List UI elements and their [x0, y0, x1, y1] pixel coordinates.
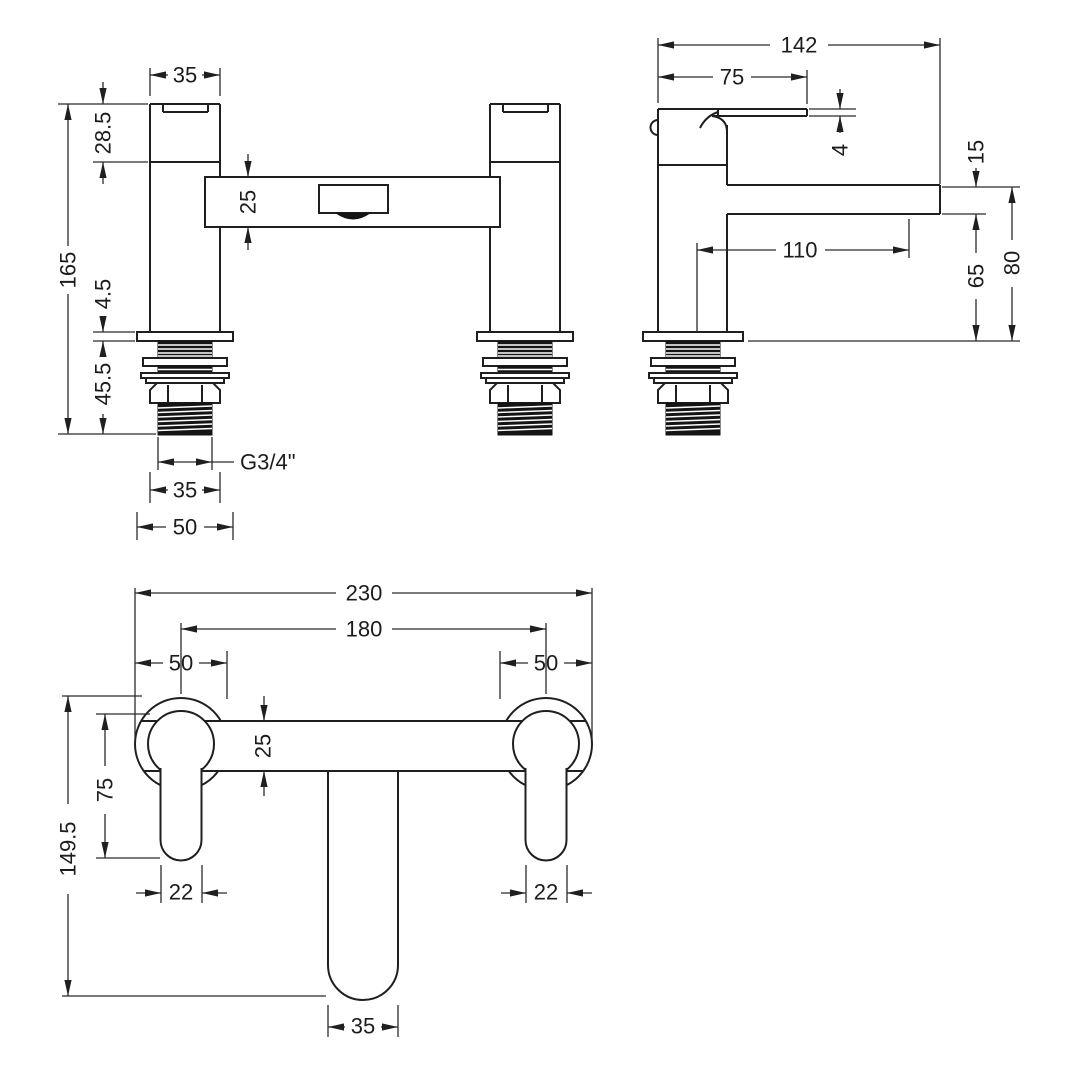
dim-plan-right-boss-dia: 50 — [534, 651, 558, 676]
dim-side-lever-thickness: 4 — [828, 144, 853, 156]
plan-bar-fill — [181, 721, 546, 771]
label-front-thread-size: G3/4" — [240, 450, 296, 475]
right-flange — [477, 332, 573, 341]
dim-plan-hole-centres: 180 — [346, 617, 383, 642]
dim-plan-spout-width: 35 — [351, 1014, 375, 1039]
dim-plan-overall-depth: 149.5 — [56, 821, 81, 876]
left-flange — [137, 332, 233, 341]
dim-side-under-spout-height: 65 — [964, 264, 989, 288]
dim-side-spout-top-height: 80 — [1000, 251, 1025, 275]
dim-plan-overall-width: 230 — [346, 581, 383, 606]
dim-front-thread-width: 35 — [173, 478, 197, 503]
spout-front — [319, 185, 388, 213]
dim-front-crossbar-depth: 25 — [236, 190, 261, 214]
right-stem-mask — [526, 757, 567, 861]
dim-front-pillar-width: 35 — [173, 63, 197, 88]
dim-plan-right-handle-width: 22 — [534, 880, 558, 905]
dim-front-flange-thickness: 4.5 — [91, 279, 116, 310]
plan-spout — [328, 771, 398, 1000]
dim-side-handle-length: 75 — [720, 65, 744, 90]
dim-side-overall-depth: 142 — [781, 33, 818, 58]
side-flange — [643, 332, 743, 341]
dim-plan-handle-length: 75 — [93, 778, 118, 802]
dim-front-flange-width: 50 — [173, 515, 197, 540]
dim-front-total-height: 165 — [56, 252, 81, 289]
dim-front-tail-length: 45.5 — [91, 363, 116, 406]
dim-plan-left-handle-width: 22 — [169, 880, 193, 905]
technical-drawing-canvas: 35 28.5 165 25 4.5 45.5 — [0, 0, 1080, 1080]
drawing-svg: 35 28.5 165 25 4.5 45.5 — [0, 0, 1080, 1080]
dim-side-spout-thickness: 15 — [964, 140, 989, 164]
dim-plan-left-boss-dia: 50 — [169, 651, 193, 676]
dim-plan-crossbar-depth: 25 — [251, 734, 276, 758]
left-stem-mask — [161, 757, 202, 860]
dim-side-spout-projection: 110 — [782, 238, 817, 263]
dim-front-head-height: 28.5 — [91, 112, 116, 155]
